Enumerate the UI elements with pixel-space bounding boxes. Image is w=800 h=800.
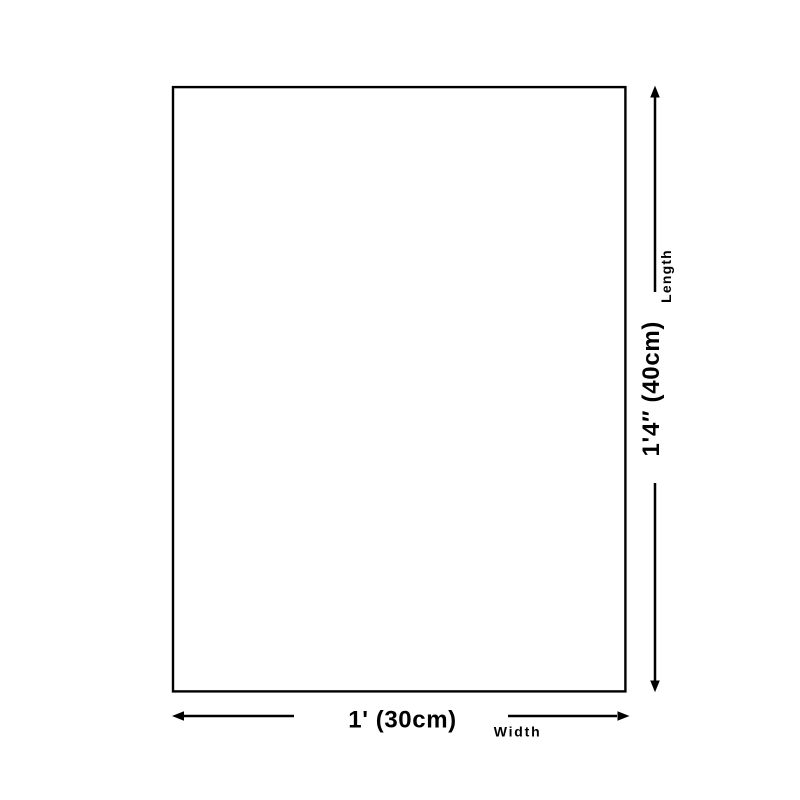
svg-text:1' (30cm): 1' (30cm) [348,707,457,734]
svg-text:1'4″ (40cm): 1'4″ (40cm) [638,321,665,457]
svg-text:Width: Width [494,724,542,740]
svg-text:Length: Length [658,249,674,303]
